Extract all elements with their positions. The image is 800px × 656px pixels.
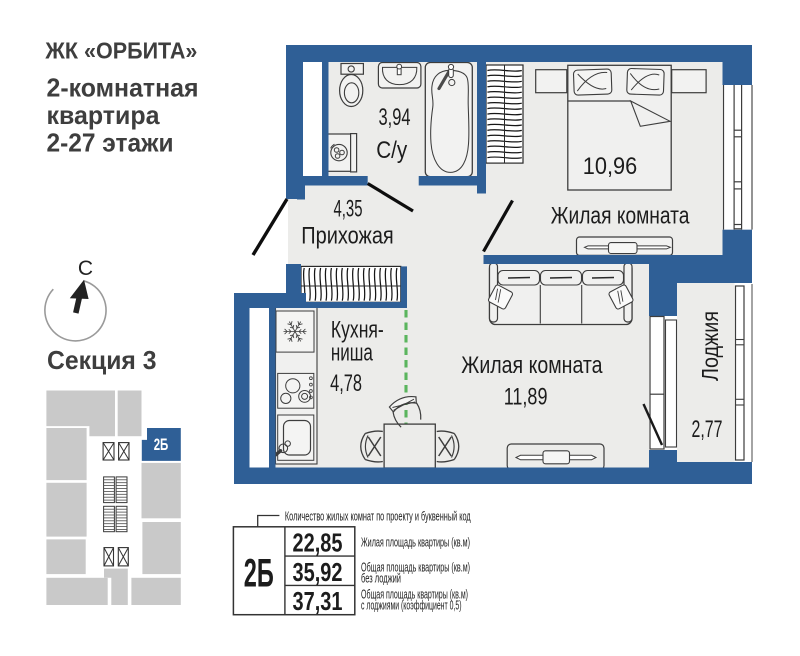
svg-text:2-комнатная: 2-комнатная [47,73,199,103]
svg-text:квартира: квартира [47,100,161,130]
svg-text:без лоджий: без лоджий [361,572,401,586]
svg-text:Прихожая: Прихожая [301,223,394,250]
svg-text:3,94: 3,94 [379,104,411,131]
svg-text:Жилая комната: Жилая комната [551,203,690,230]
svg-text:4,35: 4,35 [334,196,363,223]
svg-text:22,85: 22,85 [293,528,343,558]
svg-text:2,77: 2,77 [692,416,723,443]
svg-text:С: С [78,257,93,280]
svg-text:С/у: С/у [376,137,407,164]
svg-text:Количество жилых комнат по про: Количество жилых комнат по проекту и бук… [285,510,471,524]
svg-text:Жилая площадь квартиры (кв.м): Жилая площадь квартиры (кв.м) [361,536,470,550]
svg-text:2-27 этажи: 2-27 этажи [47,128,174,158]
svg-text:35,92: 35,92 [293,557,343,587]
svg-text:37,31: 37,31 [293,586,343,616]
svg-text:Лоджия: Лоджия [697,311,723,381]
svg-text:Секция 3: Секция 3 [47,345,157,375]
svg-text:ЖК «ОРБИТА»: ЖК «ОРБИТА» [44,38,197,64]
svg-text:11,89: 11,89 [504,384,548,411]
svg-text:4,78: 4,78 [330,370,362,397]
svg-text:Жилая комната: Жилая комната [461,352,603,379]
svg-text:с лоджиями (коэффициент 0,5): с лоджиями (коэффициент 0,5) [361,599,462,613]
svg-text:ниша: ниша [331,340,373,367]
svg-text:2Б: 2Б [244,552,274,596]
svg-text:2Б: 2Б [154,436,169,454]
svg-text:10,96: 10,96 [583,153,637,180]
